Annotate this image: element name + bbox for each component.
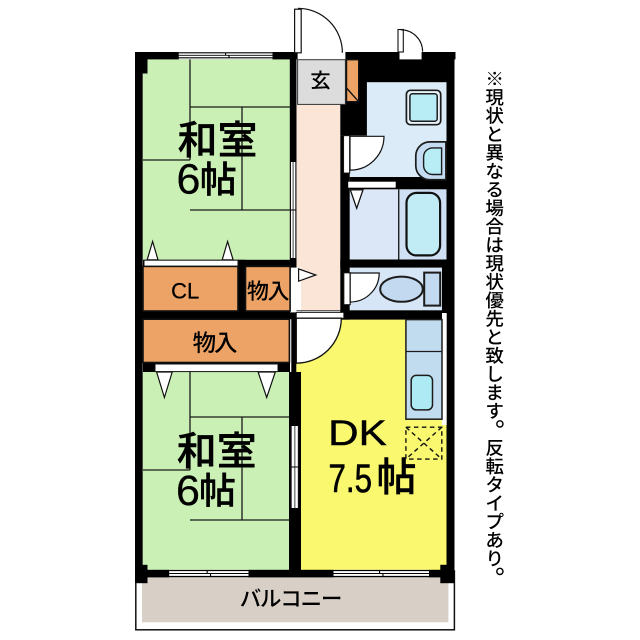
- svg-text:CL: CL: [171, 279, 199, 304]
- svg-text:6: 6: [176, 467, 200, 515]
- svg-text:DK: DK: [328, 414, 387, 453]
- svg-text:7.5: 7.5: [329, 457, 373, 501]
- svg-text:6: 6: [177, 156, 201, 204]
